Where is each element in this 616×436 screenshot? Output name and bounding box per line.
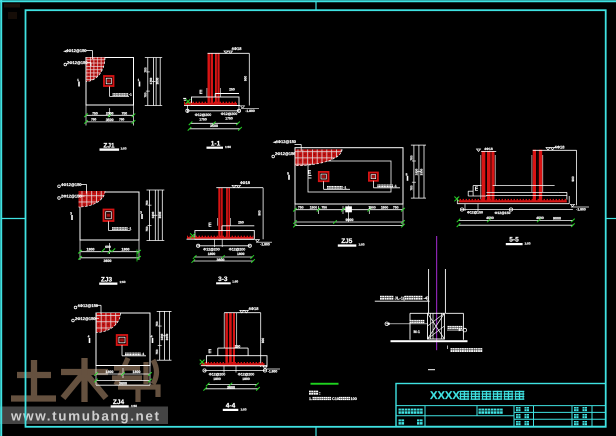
svg-text:750: 750 bbox=[119, 118, 125, 122]
svg-text:1:50: 1:50 bbox=[525, 242, 531, 246]
svg-text:1750: 1750 bbox=[225, 117, 233, 121]
svg-text:750: 750 bbox=[143, 67, 147, 72]
svg-text:C10: C10 bbox=[332, 397, 339, 401]
svg-text:4Φ12@150: 4Φ12@150 bbox=[66, 48, 87, 53]
svg-text:ZJ3: ZJ3 bbox=[101, 276, 113, 283]
svg-text:4Φ12@150: 4Φ12@150 bbox=[78, 303, 99, 308]
svg-text:2Φ12@150: 2Φ12@150 bbox=[67, 60, 88, 65]
svg-text:1: 1 bbox=[77, 78, 79, 82]
svg-text:750: 750 bbox=[409, 185, 413, 190]
svg-text:1:50: 1:50 bbox=[131, 404, 137, 408]
svg-text:-1: -1 bbox=[344, 185, 347, 189]
svg-text:1500: 1500 bbox=[381, 206, 389, 210]
svg-text:750: 750 bbox=[393, 206, 399, 210]
svg-text:Φ12@200: Φ12@200 bbox=[203, 247, 219, 251]
svg-text:750: 750 bbox=[121, 111, 127, 115]
svg-text:1:50: 1:50 bbox=[120, 280, 126, 284]
svg-text:1800: 1800 bbox=[122, 248, 130, 252]
svg-text:750: 750 bbox=[145, 226, 149, 231]
svg-text:3: 3 bbox=[140, 211, 142, 215]
svg-text:4Φ18: 4Φ18 bbox=[555, 144, 566, 149]
svg-text:100: 100 bbox=[351, 397, 357, 401]
svg-text:1800: 1800 bbox=[133, 370, 141, 374]
svg-text:3500: 3500 bbox=[210, 124, 218, 128]
svg-text:3300: 3300 bbox=[420, 168, 424, 175]
svg-text:750: 750 bbox=[143, 92, 147, 97]
svg-text:1:50: 1:50 bbox=[232, 279, 238, 283]
svg-text:1750: 1750 bbox=[149, 77, 153, 84]
svg-text:3500: 3500 bbox=[106, 118, 114, 122]
svg-text:5-5: 5-5 bbox=[509, 237, 519, 244]
svg-text:Φ12@200: Φ12@200 bbox=[238, 372, 254, 376]
svg-text:1750: 1750 bbox=[199, 118, 207, 122]
svg-text:250: 250 bbox=[238, 221, 244, 225]
svg-text:3600: 3600 bbox=[158, 211, 162, 218]
svg-text:9000: 9000 bbox=[346, 218, 354, 222]
svg-text:750: 750 bbox=[321, 206, 327, 210]
svg-text:2Φ12@150: 2Φ12@150 bbox=[275, 151, 296, 156]
svg-text:750: 750 bbox=[298, 206, 304, 210]
svg-text:Φ12@200: Φ12@200 bbox=[221, 112, 237, 116]
svg-text:3: 3 bbox=[70, 212, 72, 216]
svg-text:1800: 1800 bbox=[237, 252, 245, 256]
svg-text:9000: 9000 bbox=[553, 217, 561, 221]
svg-text:M-1: M-1 bbox=[414, 330, 421, 334]
svg-text:250: 250 bbox=[229, 88, 235, 92]
svg-text:-1: -1 bbox=[129, 227, 132, 231]
svg-text:1800: 1800 bbox=[213, 377, 221, 381]
svg-text:ZJ4: ZJ4 bbox=[113, 399, 125, 406]
svg-text:3600: 3600 bbox=[104, 259, 112, 263]
svg-text:4: 4 bbox=[151, 335, 153, 339]
svg-text:3500: 3500 bbox=[156, 77, 160, 84]
svg-text:4Φ18: 4Φ18 bbox=[232, 46, 243, 51]
svg-text:4Φ12@150: 4Φ12@150 bbox=[61, 182, 82, 187]
svg-text:1:50: 1:50 bbox=[359, 243, 365, 247]
svg-text:-1.800: -1.800 bbox=[260, 243, 270, 247]
svg-text:2Φ12@150: 2Φ12@150 bbox=[75, 316, 96, 321]
svg-text:Φ12@200: Φ12@200 bbox=[195, 113, 211, 117]
svg-text:600: 600 bbox=[105, 245, 111, 249]
svg-text:Φ12@150: Φ12@150 bbox=[467, 211, 483, 215]
svg-text:1500: 1500 bbox=[310, 206, 318, 210]
svg-text:-1.800: -1.800 bbox=[268, 369, 278, 373]
svg-text:1800: 1800 bbox=[208, 252, 216, 256]
svg-text:250: 250 bbox=[235, 345, 241, 349]
svg-text:-1: -1 bbox=[142, 352, 145, 356]
svg-text:XXXX: XXXX bbox=[430, 390, 460, 402]
svg-text:3600: 3600 bbox=[165, 333, 169, 340]
svg-text:3-3: 3-3 bbox=[218, 276, 228, 283]
svg-text:-4): -4) bbox=[424, 295, 430, 300]
svg-text:1-1: 1-1 bbox=[211, 141, 221, 148]
svg-text:Φ12@200: Φ12@200 bbox=[229, 247, 245, 251]
svg-text:1.: 1. bbox=[309, 397, 312, 401]
svg-text:4Φ12@150: 4Φ12@150 bbox=[276, 139, 297, 144]
svg-text:750: 750 bbox=[92, 111, 98, 115]
svg-text:-1.800: -1.800 bbox=[245, 109, 255, 113]
svg-text:Φ12@200: Φ12@200 bbox=[209, 372, 225, 376]
svg-text:4-4: 4-4 bbox=[226, 403, 236, 410]
svg-text:www.tumubang.net: www.tumubang.net bbox=[10, 409, 161, 424]
svg-text:750: 750 bbox=[145, 200, 149, 205]
svg-text:750: 750 bbox=[155, 321, 159, 326]
svg-text:900: 900 bbox=[257, 210, 261, 216]
svg-text:4: 4 bbox=[88, 335, 90, 339]
svg-text:5: 5 bbox=[287, 171, 289, 175]
svg-text:1800: 1800 bbox=[106, 370, 114, 374]
svg-text:1800: 1800 bbox=[242, 377, 250, 381]
svg-text:1:50: 1:50 bbox=[121, 147, 127, 151]
svg-text:750: 750 bbox=[409, 155, 413, 160]
svg-text:ZJ5: ZJ5 bbox=[341, 238, 353, 245]
svg-text:1800: 1800 bbox=[151, 211, 155, 218]
svg-text:1800: 1800 bbox=[160, 333, 164, 340]
svg-text:JL-1(: JL-1( bbox=[395, 295, 406, 300]
svg-text:4Φ18: 4Φ18 bbox=[484, 147, 493, 151]
svg-text:2000: 2000 bbox=[106, 111, 114, 115]
svg-text:900: 900 bbox=[244, 76, 248, 82]
svg-text:4Φ18: 4Φ18 bbox=[249, 306, 260, 311]
svg-text:750: 750 bbox=[91, 118, 97, 122]
svg-text:-1.800: -1.800 bbox=[576, 208, 586, 212]
svg-text:4Φ18: 4Φ18 bbox=[240, 180, 251, 185]
svg-text:1:50: 1:50 bbox=[241, 407, 247, 411]
svg-text:900: 900 bbox=[571, 176, 575, 182]
svg-text:-1: -1 bbox=[394, 184, 397, 188]
svg-text:1500: 1500 bbox=[368, 206, 376, 210]
svg-text:1:50: 1:50 bbox=[225, 145, 231, 149]
svg-text:2Φ12@150: 2Φ12@150 bbox=[61, 194, 82, 199]
svg-text:1: 1 bbox=[138, 78, 140, 82]
svg-text:-1: -1 bbox=[129, 93, 132, 97]
svg-text:900: 900 bbox=[261, 338, 265, 344]
svg-text:Φ12@150: Φ12@150 bbox=[494, 211, 510, 215]
svg-text:1800: 1800 bbox=[87, 248, 95, 252]
svg-text:1800: 1800 bbox=[414, 168, 418, 175]
svg-text:750: 750 bbox=[155, 349, 159, 354]
svg-text:5: 5 bbox=[406, 172, 408, 176]
